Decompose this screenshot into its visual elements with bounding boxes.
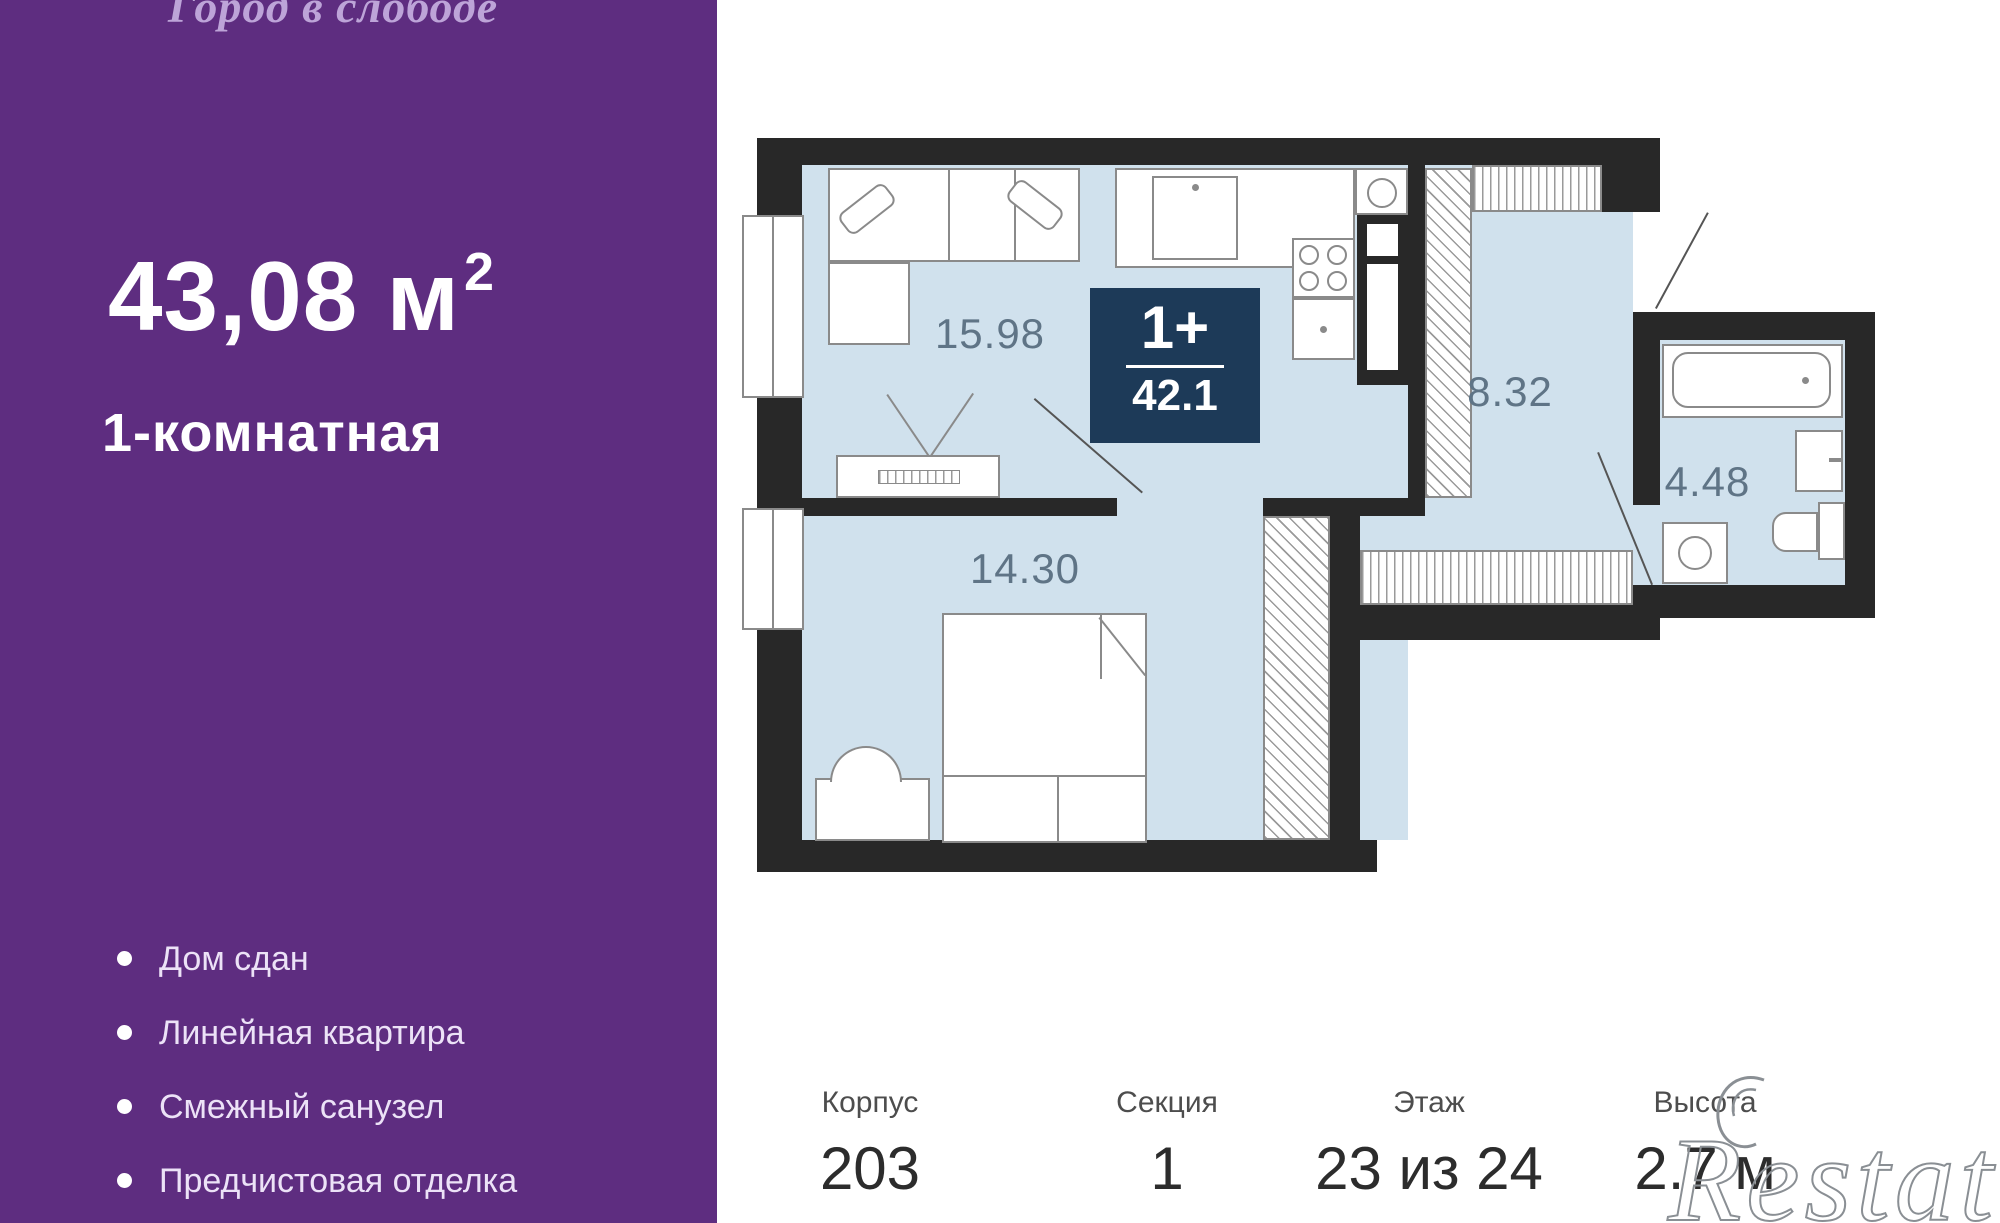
stat-label: Этаж	[1269, 1086, 1589, 1120]
label-bedroom-area: 14.30	[950, 545, 1100, 593]
wall-bedroom-bottom	[757, 840, 1377, 872]
badge-total-area: 42.1	[1132, 374, 1218, 418]
window-bedroom	[742, 508, 804, 630]
wardrobe-bedroom-column	[1263, 516, 1330, 840]
label-living-kitchen-area: 15.98	[920, 310, 1060, 358]
bathtub-drain	[1802, 377, 1809, 384]
pillow-edge	[1100, 615, 1102, 679]
feature-list: Дом сдан Линейная квартира Смежный сануз…	[117, 940, 517, 1223]
feature-item: Смежный санузел	[117, 1088, 517, 1126]
bathroom-sink	[1795, 430, 1843, 492]
round-sink	[1367, 178, 1397, 208]
apartment-type: 1-комнатная	[102, 402, 443, 464]
listing-poster: Город в слободе 43,08 м2 1-комнатная Дом…	[0, 0, 2000, 1223]
fridge	[1357, 215, 1408, 385]
complex-name: Город в слободе	[168, 0, 688, 33]
area-superscript: 2	[464, 242, 495, 302]
wall-bedroom-right	[1330, 516, 1360, 872]
wall-bathroom-right	[1845, 312, 1875, 618]
oven	[1292, 298, 1355, 360]
bed-foot-divider	[1057, 775, 1059, 841]
bullet-icon	[117, 951, 132, 966]
kitchen-sink	[1152, 176, 1238, 260]
feature-label: Смежный санузел	[159, 1088, 444, 1126]
wall-partition-living-bedroom	[757, 498, 1117, 516]
watermark-swirl-icon	[1733, 1089, 1756, 1116]
door-swing-entrance	[1655, 212, 1709, 309]
toilet-bowl	[1772, 512, 1818, 552]
bathtub	[1662, 344, 1843, 418]
burner	[1299, 245, 1319, 265]
wall-hall-right-low	[1633, 585, 1660, 640]
sofa-chaise	[828, 262, 910, 345]
apartment-badge: 1+ 42.1	[1090, 288, 1260, 443]
wardrobe-hall-column	[1425, 168, 1472, 498]
fridge-main-compartment	[1367, 264, 1398, 370]
badge-type: 1+	[1141, 298, 1209, 358]
stat-label: Корпус	[710, 1086, 1030, 1120]
toilet-tank	[1818, 502, 1845, 560]
watermark-text: Restate	[1667, 1113, 2000, 1223]
wall-top-right-corner	[1600, 138, 1660, 212]
sidebar-panel: Город в слободе 43,08 м2 1-комнатная Дом…	[0, 0, 717, 1223]
bullet-icon	[117, 1173, 132, 1188]
tv-screen	[878, 470, 960, 484]
burner	[1299, 271, 1319, 291]
bullet-icon	[117, 1099, 132, 1114]
washer-drum	[1678, 536, 1712, 570]
badge-divider	[1126, 365, 1224, 368]
stat-value: 203	[710, 1134, 1030, 1203]
feature-label: Дом сдан	[159, 940, 309, 978]
closet-corridor	[1360, 550, 1633, 605]
feature-item: Линейная квартира	[117, 1014, 517, 1052]
closet-top-shelf	[1472, 165, 1602, 212]
oven-knob	[1320, 326, 1327, 333]
window-mullion	[772, 510, 774, 628]
wall-kitchen-hall	[1408, 165, 1425, 516]
area-value: 43,08 м	[108, 241, 460, 351]
wall-top	[757, 138, 1660, 165]
burner	[1327, 271, 1347, 291]
burner	[1327, 245, 1347, 265]
kitchen-counter-corner	[1355, 168, 1408, 215]
fridge-top-compartment	[1367, 224, 1398, 256]
wall-corridor-bottom	[1343, 605, 1660, 640]
feature-label: Предчистовая отделка	[159, 1162, 517, 1200]
stat-value: 23 из 24	[1269, 1134, 1589, 1203]
sink-tap	[1829, 458, 1843, 462]
bullet-icon	[117, 1025, 132, 1040]
label-bathroom-area: 4.48	[1655, 458, 1760, 506]
armchair-base	[815, 778, 930, 841]
watermark-logo: Restate	[1660, 1068, 2000, 1223]
wall-bathroom-top	[1640, 312, 1875, 340]
bed-foot-line	[944, 775, 1145, 777]
stove	[1292, 238, 1355, 298]
apartment-area: 43,08 м2	[108, 240, 491, 353]
window-living	[742, 215, 804, 398]
tv-console	[836, 455, 1000, 498]
wall-partition-corridor	[1263, 498, 1425, 516]
feature-label: Линейная квартира	[159, 1014, 465, 1052]
stat-floor: Этаж 23 из 24	[1269, 1086, 1589, 1203]
bed	[942, 613, 1147, 843]
wall-bathroom-bottom	[1660, 585, 1875, 618]
sofa-cushion-divider	[948, 170, 950, 260]
label-hallway-area: 8.32	[1460, 368, 1560, 416]
faucet-dot	[1192, 184, 1199, 191]
stat-building: Корпус 203	[710, 1086, 1030, 1203]
washing-machine	[1662, 522, 1728, 584]
feature-item: Предчистовая отделка	[117, 1162, 517, 1200]
feature-item: Дом сдан	[117, 940, 517, 978]
pillow-fold	[1098, 617, 1146, 676]
window-mullion	[772, 217, 774, 396]
